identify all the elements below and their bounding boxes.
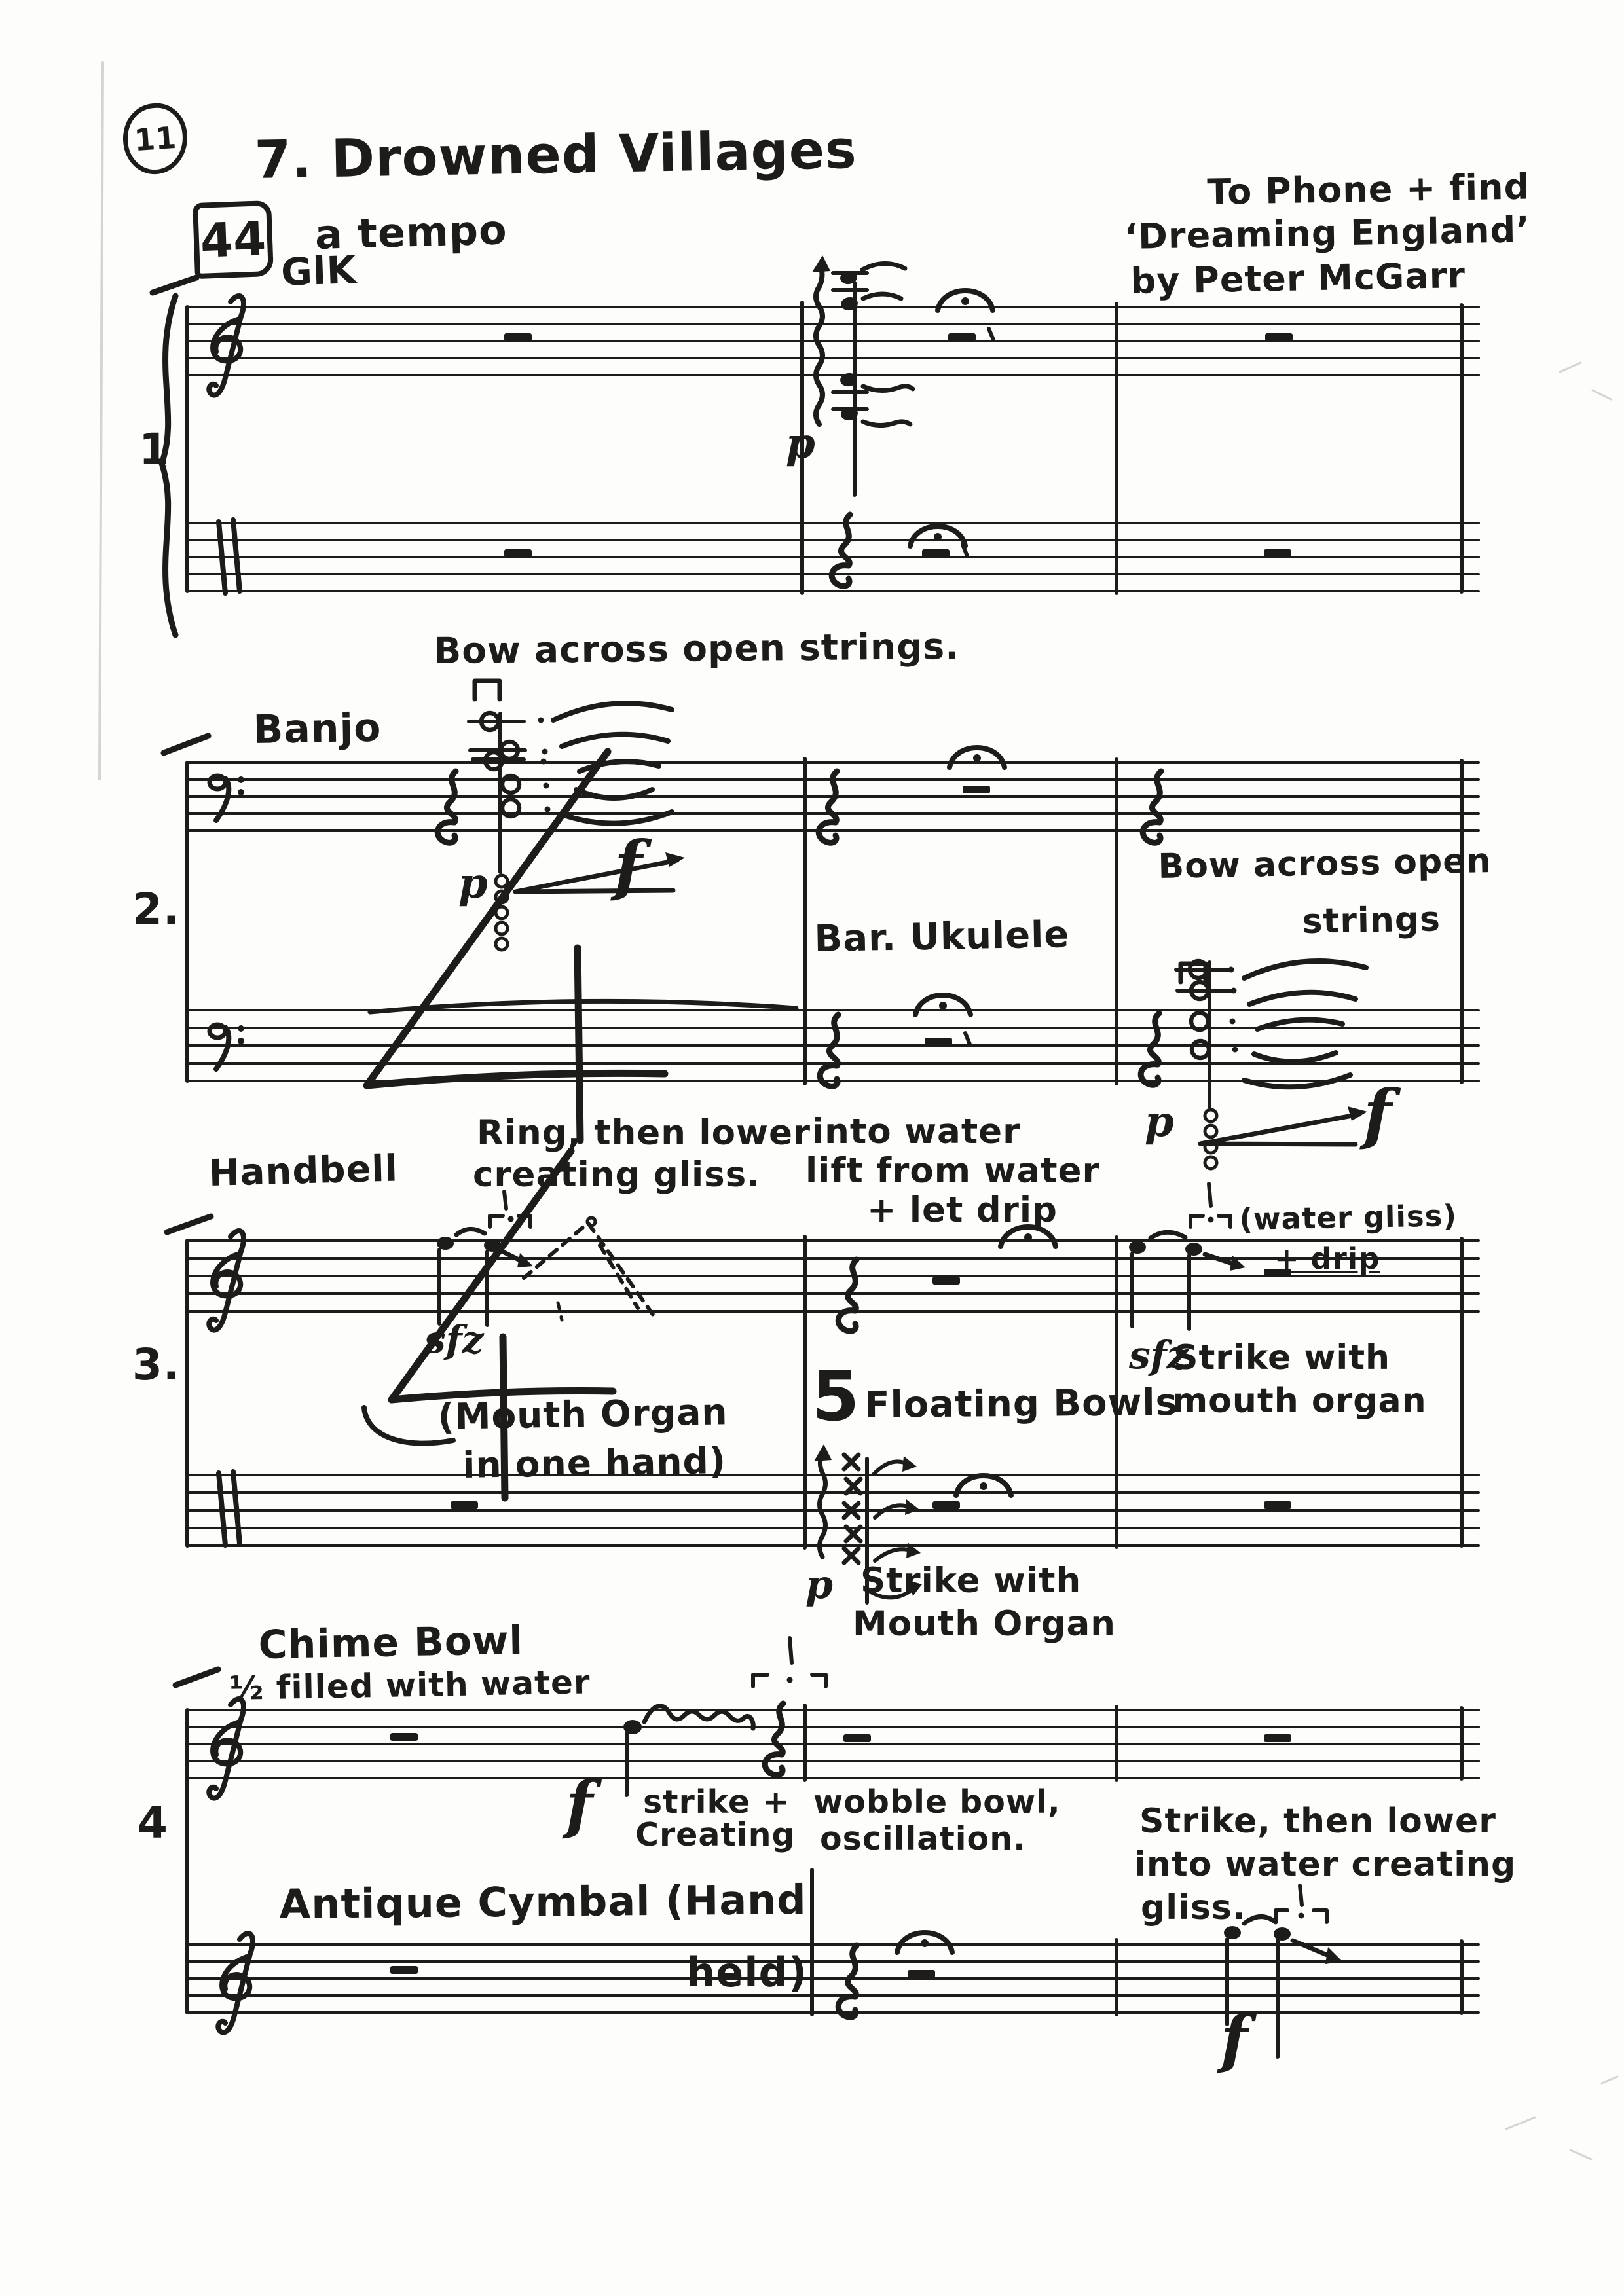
annotation-floating-bowls: Floating Bowls — [864, 1381, 1178, 1427]
system-number-1: 1 — [139, 424, 170, 475]
chime-bowl-gesture — [623, 1638, 826, 1795]
banjo-bow-chord — [469, 681, 685, 950]
system-number-2: 2. — [132, 884, 180, 934]
annotation-strike-mouthorgan-line1: Strike with — [1173, 1338, 1390, 1377]
system-number-4: 4 — [138, 1798, 168, 1848]
annotation-strike2-line1: Strike with — [860, 1561, 1081, 1601]
annotation-bow-strings-m3-line2: strings — [1302, 900, 1441, 941]
rehearsal-number: 44 — [199, 211, 267, 268]
instrument-label-chime-line1: Chime Bowl — [258, 1618, 524, 1668]
dynamic-p-banjo: p — [458, 859, 488, 908]
page-number: 11 — [133, 120, 177, 158]
annotation-mouthorgan-line1: (Mouth Organ — [437, 1391, 728, 1438]
system-number-3: 3. — [132, 1339, 180, 1390]
score-page: 11 7. Drowned Villages 44 a tempo To Pho… — [0, 0, 1624, 2296]
instrument-label-glk: GlK — [280, 247, 358, 295]
annotation-strike-mouthorgan-line2: mouth organ — [1172, 1381, 1427, 1421]
annotation-strike-creating-line2: Creating — [635, 1816, 796, 1853]
bass-clef-icon — [210, 776, 244, 1069]
dynamic-sfz-handbell-m1: sfz — [424, 1317, 484, 1362]
instrument-label-ukulele: Bar. Ukulele — [814, 913, 1070, 960]
annotation-ring-line2: creating gliss. — [473, 1155, 760, 1195]
page-title: 7. Drowned Villages — [254, 119, 857, 191]
annotation-wobble-line1: wobble bowl, — [813, 1783, 1061, 1821]
dynamic-sfz-handbell-m3: sfz — [1129, 1333, 1189, 1377]
annotation-lower-line3: gliss. — [1141, 1888, 1246, 1927]
annotation-bow-strings-m3-line1: Bow across open — [1158, 841, 1492, 886]
dedication-note-line1: To Phone + find — [1207, 166, 1530, 213]
dedication-note-line3: by Peter McGarr — [1130, 255, 1466, 302]
instrument-label-banjo: Banjo — [253, 705, 382, 753]
dynamic-f-cymbal: f — [1221, 2002, 1247, 2076]
instrument-label-cymbal-line2: held) — [686, 1948, 807, 1996]
dynamic-p-bowls: p — [805, 1562, 833, 1608]
rehearsal-mark: 44 — [193, 200, 274, 279]
instrument-label-cymbal-line1: Antique Cymbal (Hand — [279, 1876, 807, 1928]
annotation-mouthorgan-line2: in one hand) — [462, 1440, 727, 1486]
instrument-label-chime-line2: ½ filled with water — [229, 1663, 591, 1707]
dynamic-f-ukulele: f — [1363, 1075, 1392, 1152]
annotation-watergliss: (water gliss) — [1239, 1198, 1457, 1237]
dynamic-p-ukulele: p — [1145, 1097, 1174, 1146]
annotation-wobble-line2: oscillation. — [820, 1820, 1026, 1857]
annotation-ring-line1: Ring, then lower — [477, 1113, 811, 1153]
annotation-lower-line2: into water creating — [1134, 1845, 1516, 1884]
annotation-water-line3: + let drip — [867, 1190, 1058, 1230]
annotation-lower-line1: Strike, then lower — [1139, 1802, 1496, 1841]
dynamic-f-chime: f — [566, 1768, 593, 1842]
annotation-bow-strings-m1: Bow across open strings. — [434, 625, 959, 672]
dynamic-p-glk: p — [786, 419, 815, 468]
annotation-strike-creating-line1: strike + — [643, 1783, 790, 1821]
handbell-gliss-m3 — [1129, 1184, 1246, 1329]
annotation-water-line1: into water — [812, 1112, 1020, 1152]
instrument-label-handbell: Handbell — [208, 1147, 399, 1195]
ukulele-bow-chord — [1176, 961, 1367, 1169]
annotation-floating-bowls-number: 5 — [812, 1357, 860, 1436]
dynamic-f-banjo: f — [614, 826, 642, 903]
annotation-strike2-line2: Mouth Organ — [853, 1604, 1116, 1644]
annotation-drip: + drip — [1274, 1241, 1380, 1276]
dedication-note-line2: ‘Dreaming England’ — [1124, 209, 1530, 257]
annotation-water-line2: lift from water — [805, 1151, 1100, 1191]
